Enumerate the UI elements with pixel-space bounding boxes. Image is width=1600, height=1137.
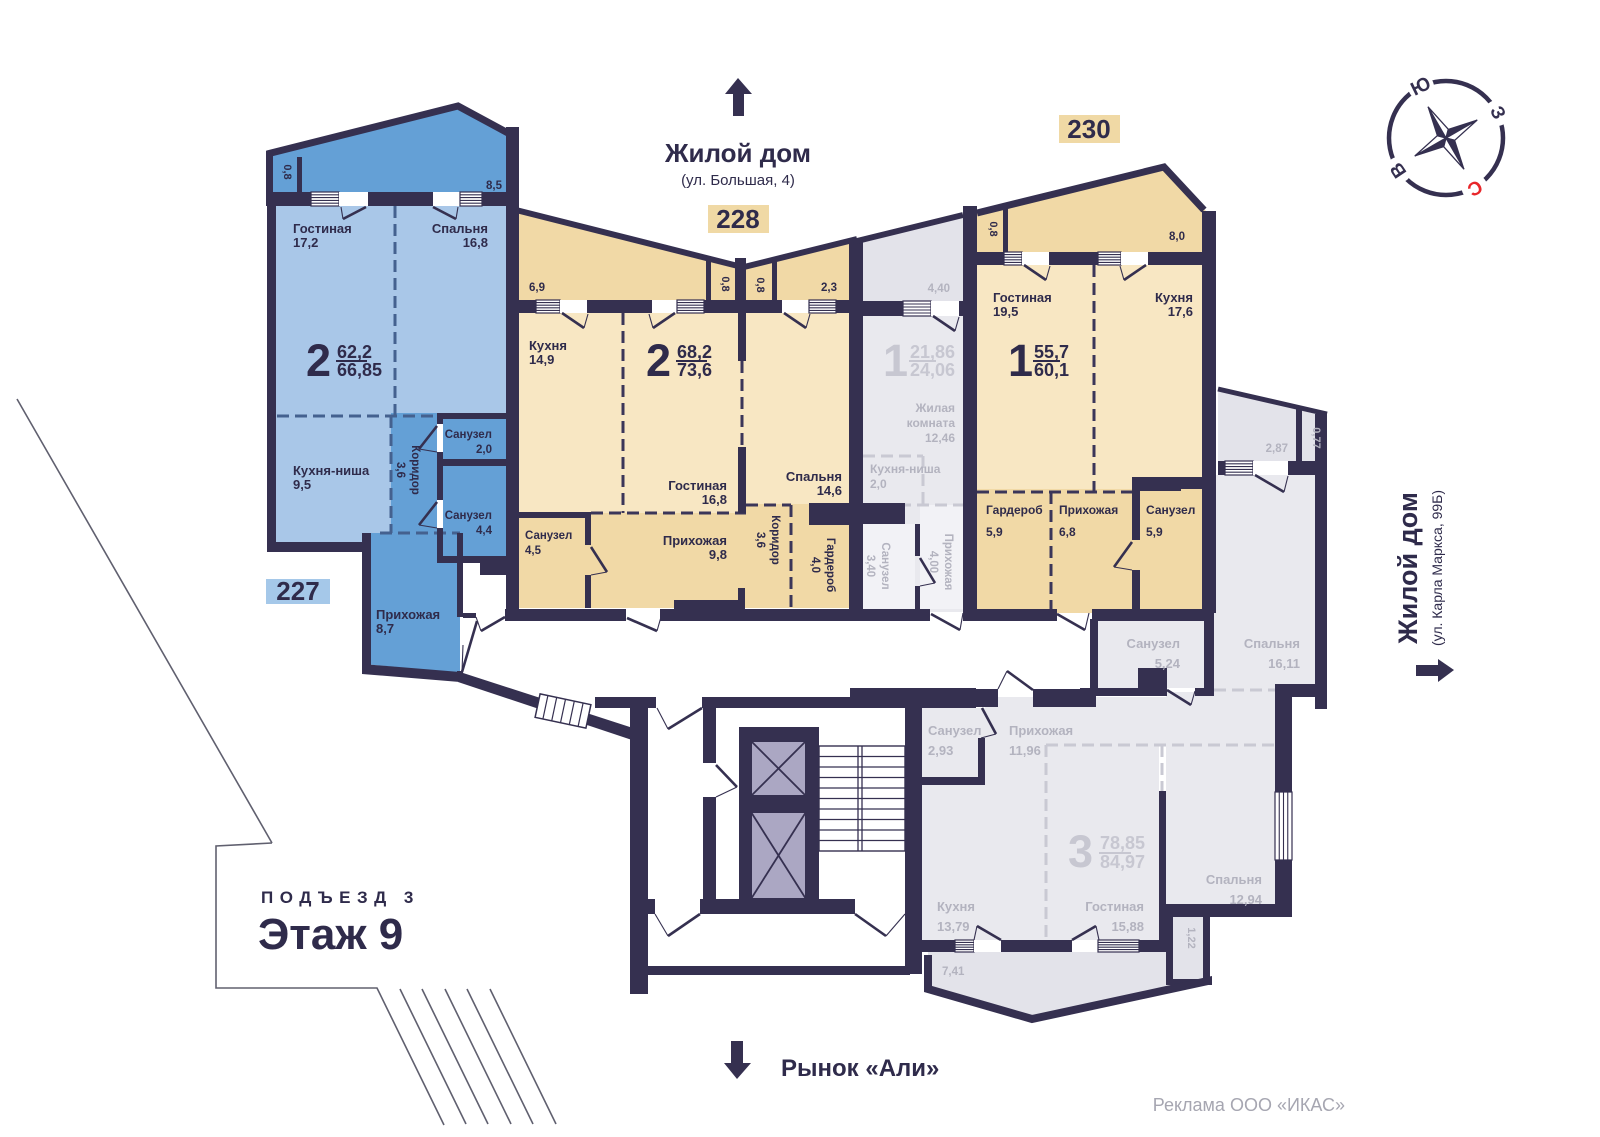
- svg-text:228: 228: [716, 204, 759, 234]
- svg-text:230: 230: [1067, 114, 1110, 144]
- svg-text:2,87: 2,87: [1266, 443, 1288, 455]
- svg-text:3: 3: [1068, 826, 1093, 877]
- svg-text:(ул. Большая, 4): (ул. Большая, 4): [681, 172, 795, 189]
- svg-text:15,88: 15,88: [1111, 919, 1144, 934]
- svg-text:16,11: 16,11: [1268, 656, 1300, 671]
- svg-text:Этаж 9: Этаж 9: [258, 910, 403, 959]
- svg-text:0,77: 0,77: [1310, 427, 1322, 448]
- svg-text:0,8: 0,8: [987, 221, 999, 236]
- svg-text:Прихожая: Прихожая: [1009, 723, 1073, 738]
- svg-text:4,40: 4,40: [928, 283, 950, 295]
- svg-text:Кухня: Кухня: [937, 899, 975, 914]
- svg-text:6,8: 6,8: [1059, 525, 1076, 539]
- svg-text:12,94: 12,94: [1229, 892, 1262, 907]
- svg-text:227: 227: [276, 576, 319, 606]
- svg-text:17,6: 17,6: [1168, 304, 1193, 319]
- svg-text:60,1: 60,1: [1034, 360, 1069, 380]
- svg-text:Гостиная: Гостиная: [993, 290, 1052, 305]
- svg-text:1,22: 1,22: [1185, 927, 1197, 948]
- svg-text:Санузел: Санузел: [445, 510, 492, 522]
- svg-text:8,5: 8,5: [486, 180, 503, 192]
- svg-text:66,85: 66,85: [337, 360, 382, 380]
- svg-text:0,8: 0,8: [281, 164, 293, 179]
- svg-text:Санузел: Санузел: [1127, 636, 1180, 651]
- svg-text:Гостиная: Гостиная: [1085, 899, 1144, 914]
- svg-text:0,8: 0,8: [719, 276, 731, 291]
- svg-text:14,9: 14,9: [529, 352, 554, 367]
- svg-text:6,9: 6,9: [529, 282, 545, 294]
- svg-text:Прихожая: Прихожая: [663, 533, 727, 548]
- svg-text:24,06: 24,06: [910, 360, 955, 380]
- svg-text:4,4: 4,4: [476, 525, 493, 537]
- svg-text:Жилой дом: Жилой дом: [664, 138, 811, 168]
- svg-text:68,2: 68,2: [677, 342, 712, 362]
- svg-text:1: 1: [883, 335, 908, 386]
- svg-text:78,85: 78,85: [1100, 833, 1145, 853]
- svg-text:19,5: 19,5: [993, 304, 1018, 319]
- svg-text:1: 1: [1008, 335, 1033, 386]
- svg-text:Санузел: Санузел: [445, 429, 492, 441]
- svg-text:Прихожая: Прихожая: [376, 607, 440, 622]
- svg-text:ПОДЪЕЗД 3: ПОДЪЕЗД 3: [261, 888, 420, 907]
- svg-text:Прихожая: Прихожая: [1059, 503, 1118, 517]
- svg-text:9,8: 9,8: [709, 547, 727, 562]
- svg-text:7,41: 7,41: [942, 966, 965, 978]
- svg-text:Гостиная: Гостиная: [668, 478, 727, 493]
- svg-text:Реклама ООО «ИКАС»: Реклама ООО «ИКАС»: [1153, 1095, 1345, 1115]
- svg-text:Кухня-ниша: Кухня-ниша: [870, 462, 941, 476]
- svg-text:0,8: 0,8: [754, 277, 766, 292]
- svg-text:8,0: 8,0: [1169, 231, 1185, 243]
- svg-text:Кухня-ниша: Кухня-ниша: [293, 463, 370, 478]
- svg-text:4,5: 4,5: [525, 545, 542, 557]
- svg-text:Рынок «Али»: Рынок «Али»: [781, 1055, 939, 1082]
- svg-text:21,86: 21,86: [910, 342, 955, 362]
- svg-text:2,0: 2,0: [870, 477, 887, 491]
- svg-text:комната: комната: [907, 416, 956, 430]
- svg-text:(ул. Карла Маркса, 99Б): (ул. Карла Маркса, 99Б): [1429, 490, 1445, 646]
- svg-text:73,6: 73,6: [677, 360, 712, 380]
- svg-text:55,7: 55,7: [1034, 342, 1069, 362]
- svg-text:Спальня: Спальня: [1206, 872, 1262, 887]
- svg-text:17,2: 17,2: [293, 235, 318, 250]
- svg-text:12,46: 12,46: [925, 431, 955, 445]
- svg-text:8,7: 8,7: [376, 621, 394, 636]
- svg-text:5,9: 5,9: [1146, 525, 1163, 539]
- svg-text:Жилой дом: Жилой дом: [1393, 492, 1423, 645]
- svg-text:16,8: 16,8: [702, 492, 727, 507]
- svg-text:14,6: 14,6: [817, 483, 842, 498]
- svg-text:2: 2: [646, 335, 671, 386]
- svg-text:Кухня: Кухня: [1155, 290, 1193, 305]
- svg-text:Спальня: Спальня: [786, 469, 842, 484]
- svg-text:2,0: 2,0: [476, 444, 492, 456]
- svg-text:9,5: 9,5: [293, 477, 311, 492]
- svg-text:62,2: 62,2: [337, 342, 372, 362]
- svg-text:Спальня: Спальня: [1244, 636, 1300, 651]
- svg-text:Спальня: Спальня: [432, 221, 488, 236]
- svg-text:Санузел: Санузел: [928, 723, 981, 738]
- svg-text:2,93: 2,93: [928, 743, 953, 758]
- svg-text:Гостиная: Гостиная: [293, 221, 352, 236]
- svg-text:5,9: 5,9: [986, 525, 1003, 539]
- svg-text:11,96: 11,96: [1009, 743, 1041, 758]
- svg-text:Санузел: Санузел: [525, 530, 572, 542]
- svg-text:13,79: 13,79: [937, 919, 970, 934]
- svg-text:2: 2: [306, 335, 331, 386]
- svg-text:2,3: 2,3: [821, 282, 837, 294]
- svg-text:Жилая: Жилая: [914, 401, 955, 415]
- svg-text:Гардероб: Гардероб: [986, 503, 1043, 517]
- svg-text:5,24: 5,24: [1155, 656, 1181, 671]
- svg-text:Санузел: Санузел: [1146, 503, 1195, 517]
- svg-text:84,97: 84,97: [1100, 852, 1145, 872]
- svg-text:Кухня: Кухня: [529, 338, 567, 353]
- svg-text:16,8: 16,8: [463, 235, 488, 250]
